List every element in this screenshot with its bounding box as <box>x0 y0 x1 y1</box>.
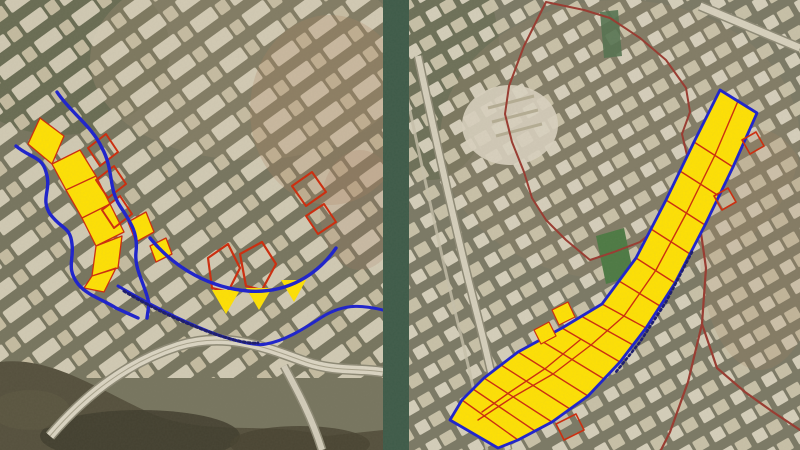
map-canvas <box>0 0 800 450</box>
figure-root <box>0 0 800 450</box>
film-grain-overlay <box>0 0 800 450</box>
